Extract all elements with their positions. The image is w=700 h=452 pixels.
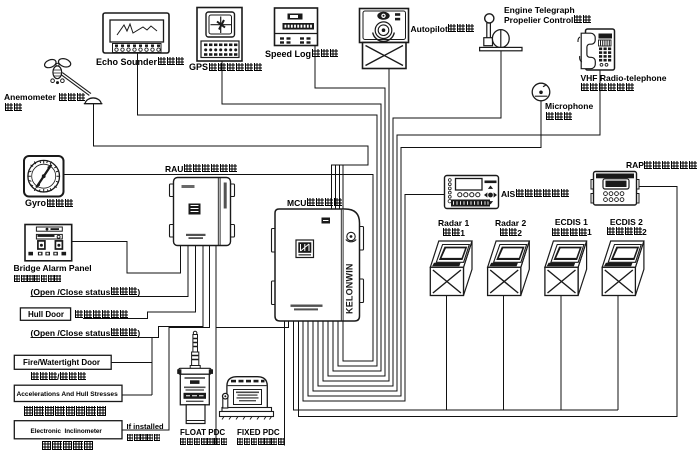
- svg-text:KELONWIN: KELONWIN: [345, 263, 355, 314]
